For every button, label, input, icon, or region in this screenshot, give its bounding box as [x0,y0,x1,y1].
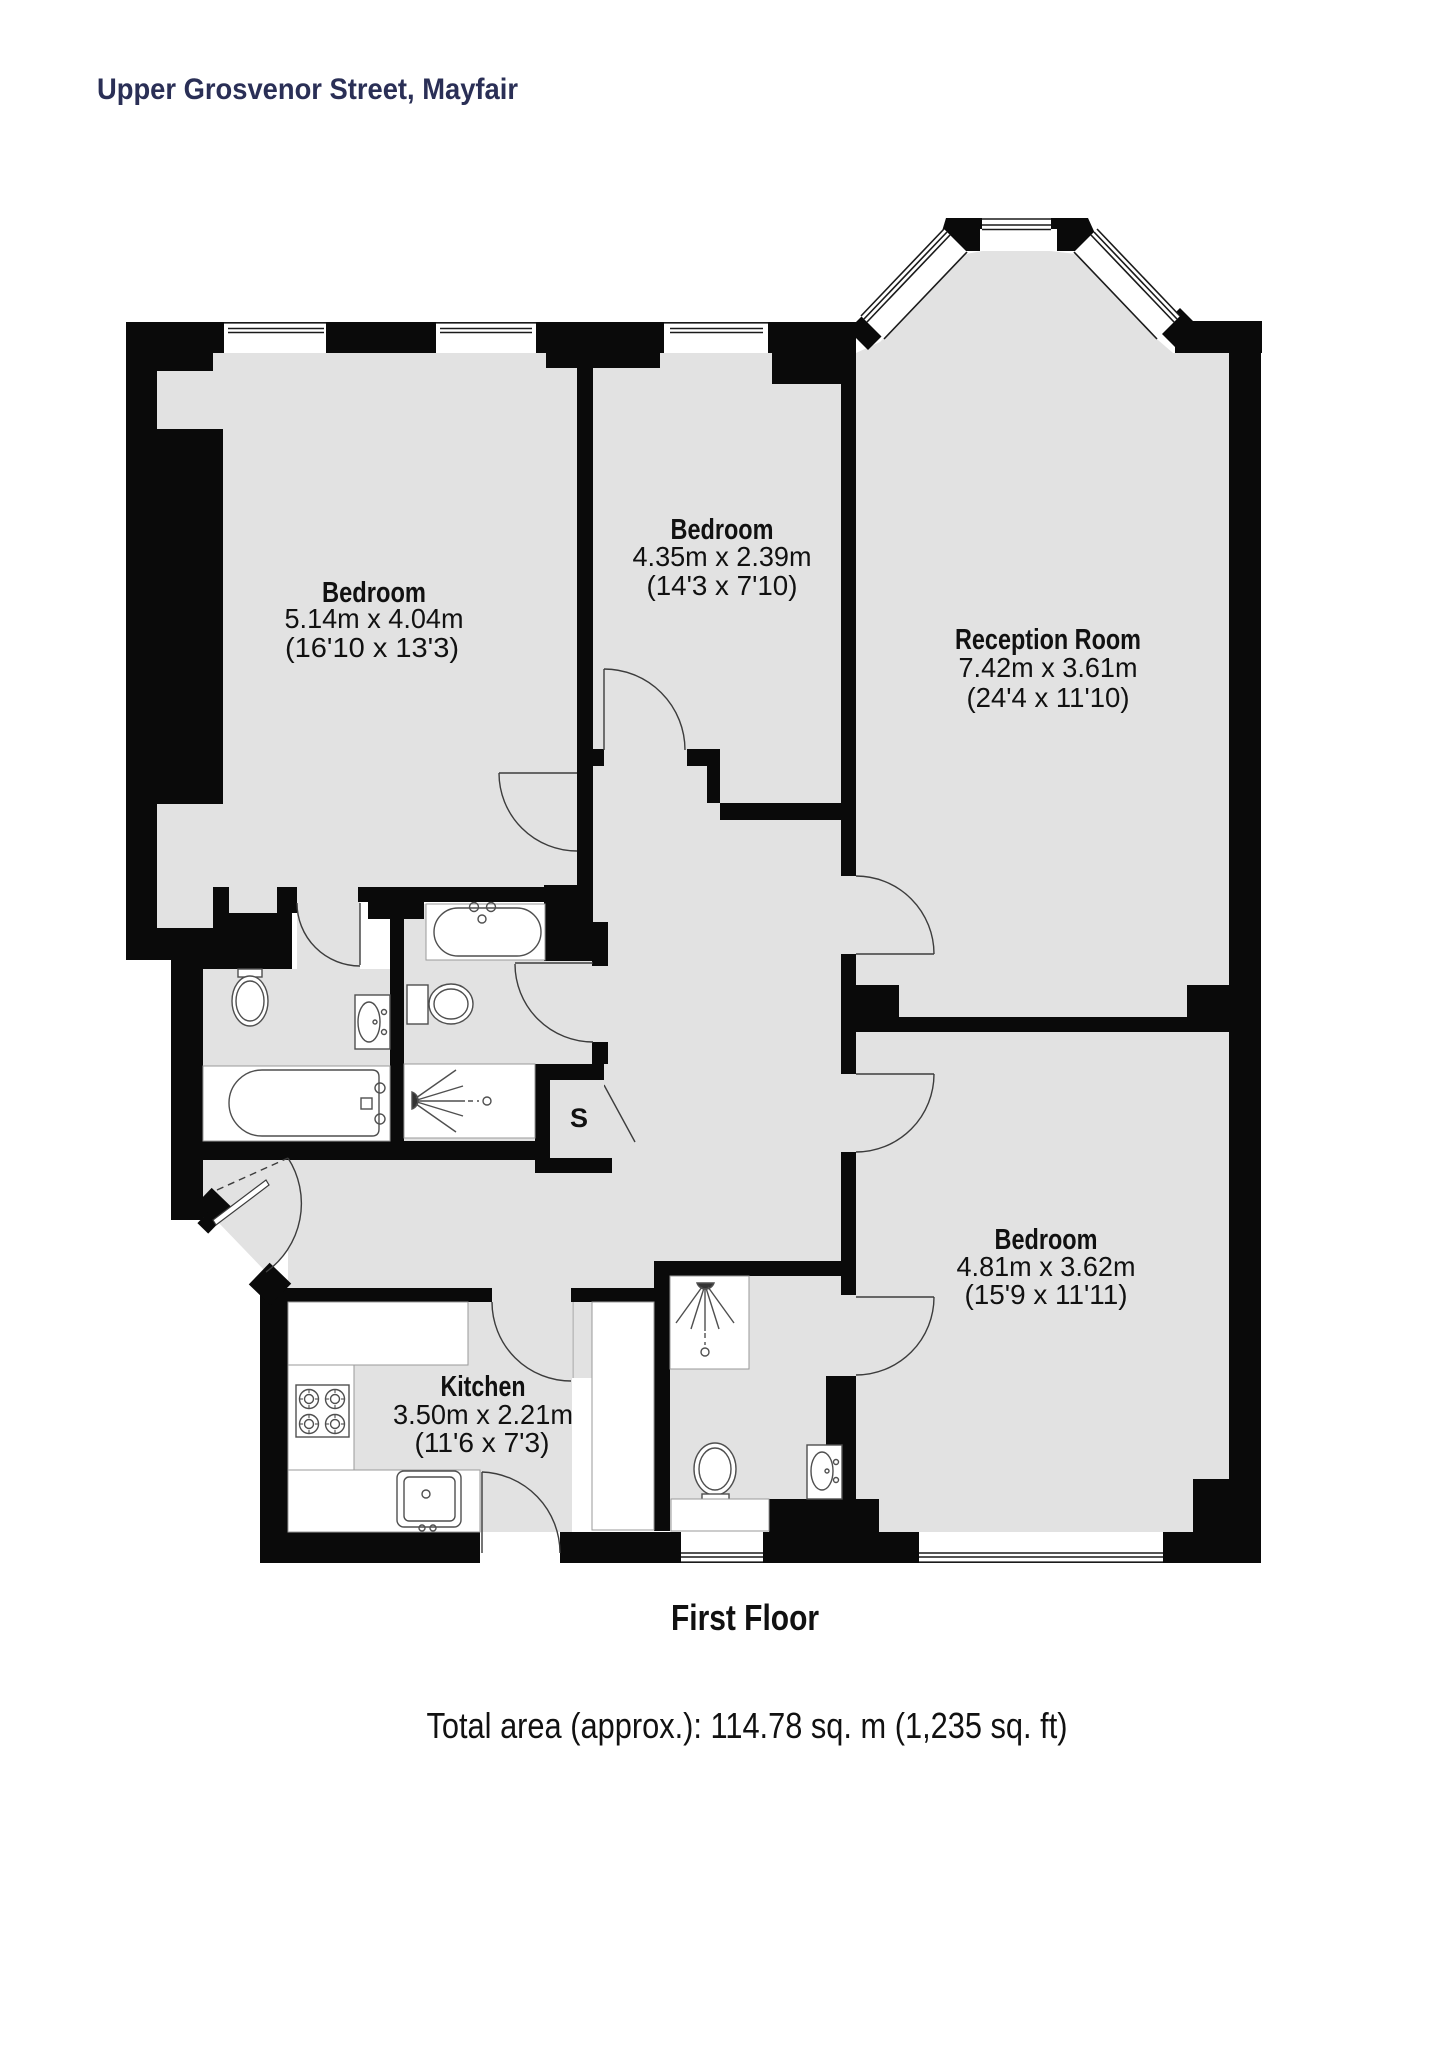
svg-text:(14'3 x 7'10): (14'3 x 7'10) [647,570,798,601]
svg-text:Upper Grosvenor Street, Mayfai: Upper Grosvenor Street, Mayfair [97,73,518,106]
svg-text:(15'9 x 11'11): (15'9 x 11'11) [965,1279,1128,1310]
svg-text:4.81m x 3.62m: 4.81m x 3.62m [957,1251,1136,1282]
svg-text:4.35m x 2.39m: 4.35m x 2.39m [633,541,812,572]
svg-text:(16'10 x 13'3): (16'10 x 13'3) [285,632,459,663]
svg-text:3.50m x 2.21m: 3.50m x 2.21m [393,1399,573,1430]
svg-text:S: S [570,1103,588,1133]
svg-text:Total area (approx.): 114.78 s: Total area (approx.): 114.78 sq. m (1,23… [427,1705,1068,1746]
svg-text:7.42m x 3.61m: 7.42m x 3.61m [959,652,1138,683]
svg-text:First Floor: First Floor [671,1597,819,1638]
svg-text:(11'6 x 7'3): (11'6 x 7'3) [415,1427,550,1458]
svg-text:5.14m x 4.04m: 5.14m x 4.04m [285,603,464,634]
svg-text:(24'4 x 11'10): (24'4 x 11'10) [967,682,1130,713]
